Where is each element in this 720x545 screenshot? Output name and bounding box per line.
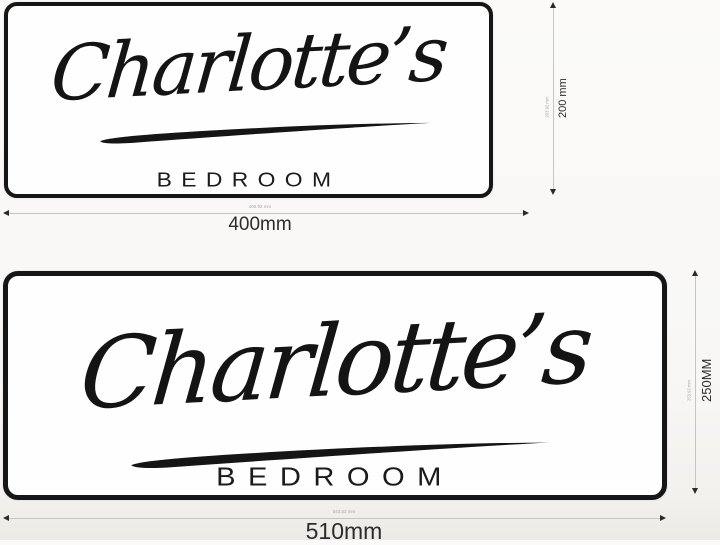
dimension-micro-label: 253.92 mm — [688, 359, 692, 401]
dimension-arrow-up-icon — [692, 270, 698, 276]
sign-subtitle: BEDROOM — [0, 462, 675, 491]
dimension-line — [695, 272, 696, 490]
sign-panel-large: Charlotte’s BEDROOM — [3, 271, 667, 500]
dimension-arrow-down-icon — [692, 488, 698, 494]
sign-panel-small: Charlotte’s BEDROOM — [4, 2, 493, 198]
dimension-arrow-left-icon — [3, 515, 9, 521]
dimension-micro-label: 203.92 mm — [546, 78, 550, 117]
dimension-arrow-left-icon — [3, 210, 9, 216]
sign-name-script: Charlotte’s — [2, 270, 668, 453]
sign-subtitle: BEDROOM — [0, 168, 499, 192]
dimension-arrow-up-icon — [550, 2, 556, 8]
dimension-arrow-down-icon — [550, 189, 556, 195]
dimension-arrow-right-icon — [660, 515, 666, 521]
dimension-label: 200 mm — [557, 63, 569, 133]
dimension-label: 250MM — [699, 333, 714, 428]
dimension-label: 400mm — [175, 214, 345, 236]
dimension-label: 510mm — [259, 518, 429, 545]
sign-name-script: Charlotte’s — [3, 0, 493, 133]
dimension-arrow-right-icon — [523, 210, 529, 216]
dimension-micro-label: 405.92 mm — [208, 205, 313, 210]
dimension-micro-label: 543.52 mm — [292, 510, 397, 515]
dimension-line — [553, 4, 554, 191]
